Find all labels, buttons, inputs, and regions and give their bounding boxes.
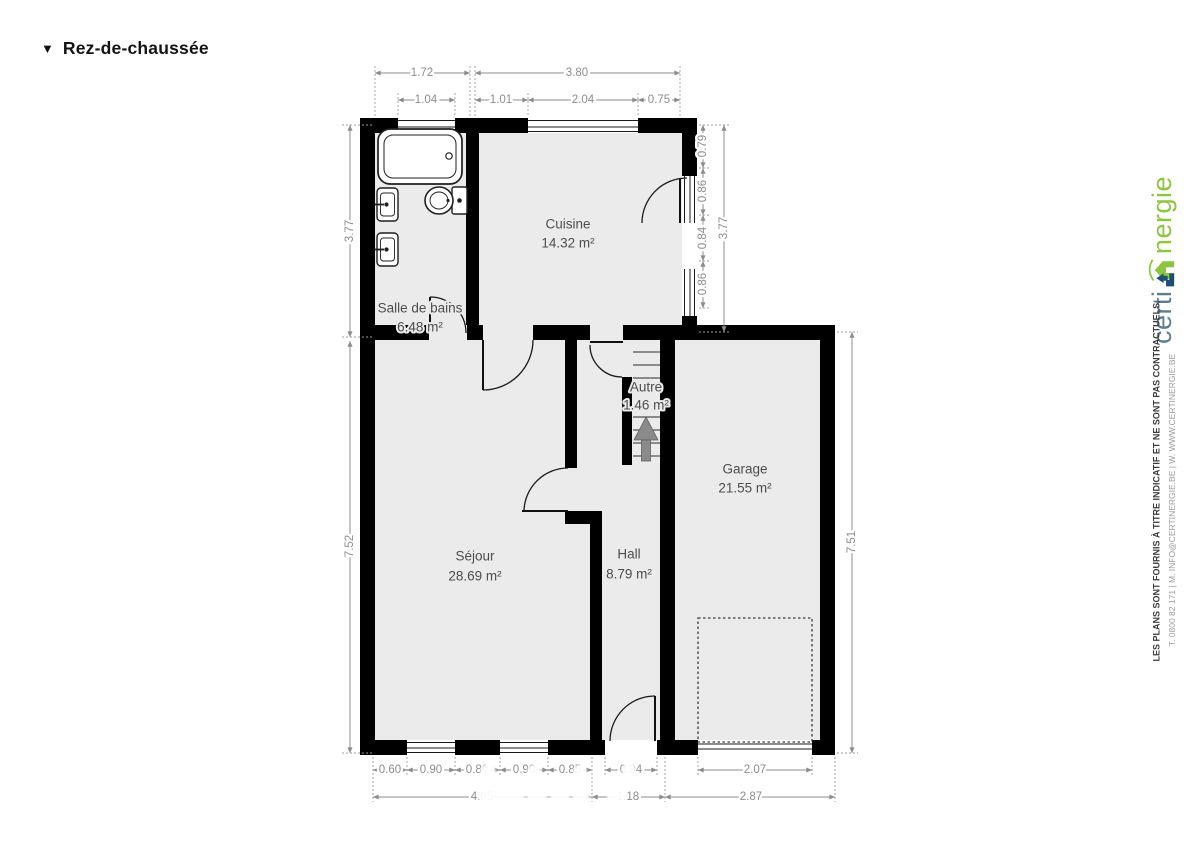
- room-name: Cuisine: [545, 217, 590, 232]
- dim-label: 0.86: [697, 273, 709, 295]
- dim-label: 7.51: [846, 531, 858, 553]
- room-area: 1.46 m²: [623, 398, 669, 413]
- dim-label: 1.01: [490, 94, 512, 106]
- sink-icon: [375, 233, 398, 266]
- room-name: Hall: [617, 547, 640, 562]
- wall-left: [360, 118, 375, 755]
- room-name: Autre: [630, 380, 662, 395]
- room-name: Garage: [722, 462, 767, 477]
- dim-label: 1.72: [411, 67, 433, 79]
- window-kitchen-top: [528, 118, 638, 133]
- certinergie-house-icon: [1142, 256, 1182, 288]
- disclaimer-line-2: T. 0800 82 171 | M. INFO@CERTINERGIE.BE …: [1167, 339, 1179, 661]
- window-sejour-bottom-2: [500, 740, 548, 755]
- floor-plan-canvas: 1.72 3.80 1.04 1.01 2.04 0.75 3.77 7.52 …: [0, 0, 1200, 848]
- watermark-blobs: [479, 762, 636, 822]
- window-sejour-bottom-1: [407, 740, 455, 755]
- dim-label: 7.52: [344, 535, 356, 557]
- toilet-icon: [425, 187, 467, 214]
- disclaimer-line-1: LES PLANS SONT FOURNIS À TITRE INDICATIF…: [1152, 340, 1165, 662]
- floor-garage: [675, 340, 820, 740]
- dim-label: 2.87: [740, 791, 762, 803]
- logo-text-nergie: nergie: [1147, 176, 1178, 254]
- dim-label: 0.79: [697, 135, 709, 157]
- dim-label: 1.04: [415, 94, 438, 106]
- window-kitchen-right-1: [682, 176, 697, 223]
- wall-garage-right: [820, 325, 835, 755]
- wall-garage-top: [660, 325, 835, 340]
- room-area: 6.48 m²: [397, 320, 443, 335]
- sink-icon: [375, 188, 398, 221]
- dim-label: 0.60: [379, 764, 401, 776]
- dim-label: 0.84: [697, 226, 709, 249]
- floor-sejour-hall: [375, 340, 660, 740]
- dim-label: 0.86: [697, 180, 709, 202]
- dim-label: 0.75: [648, 94, 670, 106]
- dim-label: 2.07: [744, 764, 766, 776]
- wall-garage-left: [660, 325, 675, 755]
- dim-label: 3.77: [718, 217, 730, 239]
- room-area: 21.55 m²: [718, 481, 772, 496]
- wall-partition-upper: [565, 340, 577, 468]
- room-name: Séjour: [455, 549, 495, 564]
- dim-label: 0.90: [420, 764, 442, 776]
- wall-bath-divider: [466, 133, 479, 325]
- bathtub-icon: [378, 129, 462, 184]
- floor-plan-svg: 1.72 3.80 1.04 1.01 2.04 0.75 3.77 7.52 …: [0, 0, 1200, 848]
- dim-label: 3.80: [566, 67, 588, 79]
- dim-label: 3.77: [344, 220, 356, 242]
- window-kitchen-right-2: [682, 269, 697, 316]
- wall-partition-lower: [590, 511, 602, 755]
- floor-plan-page: ▼ Rez-de-chaussée: [0, 0, 1200, 848]
- room-area: 8.79 m²: [606, 567, 652, 582]
- room-area: 14.32 m²: [541, 236, 595, 251]
- room-name: Salle de bains: [378, 301, 463, 316]
- certinergie-logo: certi nergie: [1140, 176, 1184, 344]
- dim-label: 2.04: [572, 94, 595, 106]
- room-area: 28.69 m²: [448, 569, 502, 584]
